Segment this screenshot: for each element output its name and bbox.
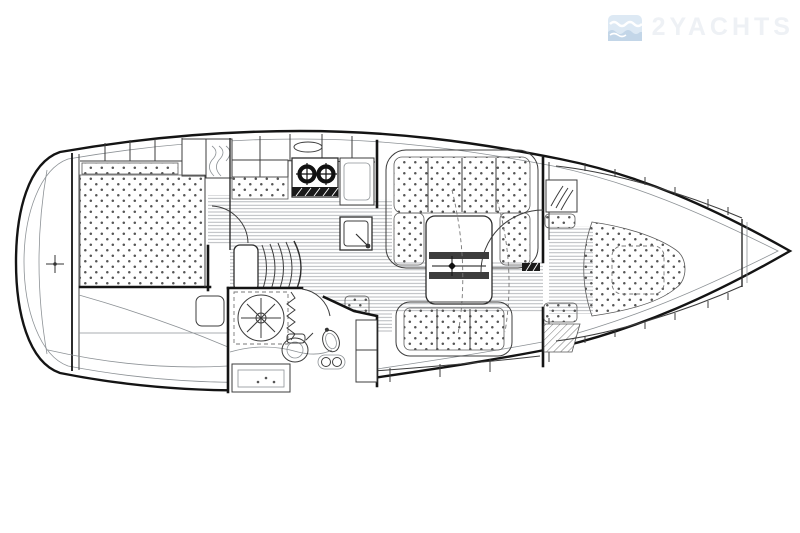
aft-cabin-step bbox=[196, 296, 224, 326]
u-settee-cushion-right bbox=[500, 213, 530, 265]
waves-logo-icon bbox=[608, 15, 642, 41]
head-shelf-lower bbox=[356, 350, 377, 382]
hanging-locker bbox=[206, 139, 232, 178]
double-berth-aft bbox=[80, 175, 205, 287]
aft-cabinet bbox=[182, 139, 206, 176]
oven bbox=[292, 187, 338, 196]
head-vanity bbox=[232, 364, 290, 392]
watermark: 2YACHTS bbox=[608, 13, 794, 42]
aft-shelf-cushion bbox=[82, 163, 178, 174]
forward-shelf-bottom bbox=[544, 303, 577, 322]
galley-counter bbox=[340, 158, 374, 205]
mast-step bbox=[522, 263, 540, 271]
u-settee-cushion-left bbox=[394, 213, 424, 265]
forward-hanging-locker bbox=[546, 180, 577, 212]
two-burner-stove bbox=[292, 158, 338, 197]
starboard-settee-cushion bbox=[404, 308, 504, 350]
floor-plan-canvas bbox=[0, 0, 800, 533]
forward-shelf-top bbox=[545, 214, 575, 228]
head-shelf-upper bbox=[356, 320, 377, 350]
galley-sink bbox=[340, 217, 372, 250]
galley-seat-cushion bbox=[232, 177, 288, 199]
watermark-brand-text: 2YACHTS bbox=[652, 13, 794, 42]
yacht-floor-plan-page: 2YACHTS bbox=[0, 0, 800, 533]
